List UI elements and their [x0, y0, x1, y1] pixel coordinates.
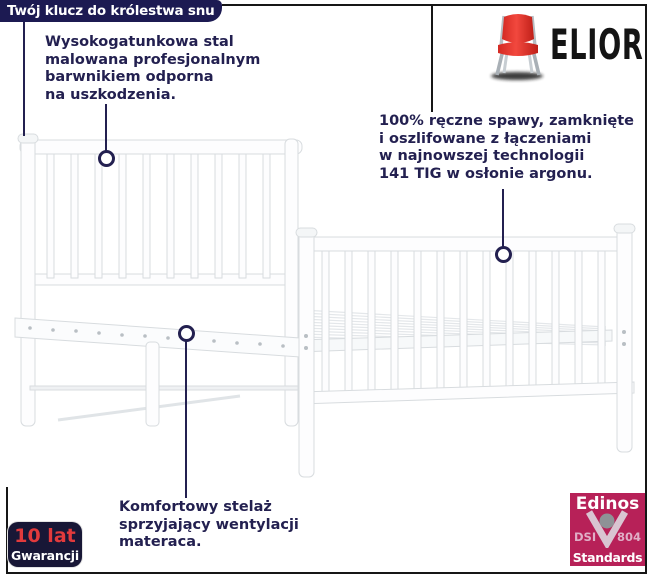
brand-logo: ELIOR — [478, 8, 648, 84]
bed-legs — [30, 342, 298, 426]
annotation-steel: Wysokogatunkowa stal malowana profesjona… — [45, 34, 260, 104]
welds-feed-line — [431, 4, 433, 112]
annotation-welds-line4: 141 TIG w osłonie argonu. — [379, 166, 634, 184]
annotation-base: Komfortowy stelaż sprzyjający wentylacji… — [119, 499, 299, 552]
annotation-base-line3: materaca. — [119, 534, 299, 552]
annotation-welds-line3: w najnowszej technologii — [379, 148, 634, 166]
bed-footboard — [296, 224, 635, 477]
steel-callout-marker — [98, 150, 115, 167]
warranty-years: 10 lat — [8, 524, 82, 548]
annotation-welds: 100% ręczne spawy, zamknięte i oszlifowa… — [379, 113, 634, 183]
brand-wordmark: ELIOR — [550, 22, 644, 68]
certificate-badge: Edinos DSI 804 Standards — [570, 493, 645, 566]
welds-callout-line — [502, 189, 504, 247]
certificate-right-text: 804 — [617, 530, 641, 544]
frame-bottom-line — [6, 572, 647, 574]
warranty-badge: 10 lat Gwarancji — [8, 522, 82, 567]
base-callout-marker — [178, 325, 195, 342]
tagline-banner: Twój klucz do królestwa snu — [0, 0, 222, 22]
annotation-steel-line1: Wysokogatunkowa stal — [45, 34, 260, 52]
annotation-welds-line2: i oszlifowane z łączeniami — [379, 131, 634, 149]
annotation-steel-line3: barwnikiem odporna — [45, 69, 260, 87]
warranty-label: Gwarancji — [8, 548, 82, 563]
certificate-left-text: DSI — [574, 530, 596, 544]
frame-right-line — [645, 4, 647, 574]
welds-callout-marker — [495, 246, 512, 263]
red-chair-icon — [488, 10, 548, 84]
frame-top-line — [222, 4, 645, 6]
steel-callout-line — [105, 104, 107, 153]
annotation-base-line2: sprzyjający wentylacji — [119, 517, 299, 535]
annotation-steel-line2: malowana profesjonalnym — [45, 52, 260, 70]
product-infographic: Twój klucz do królestwa snu ELIOR Wysoko… — [0, 0, 650, 580]
annotation-steel-line4: na uszkodzenia. — [45, 87, 260, 105]
base-callout-line — [185, 340, 187, 498]
banner-callout-line — [23, 22, 25, 136]
certificate-bottom-text: Standards — [570, 550, 645, 565]
annotation-base-line1: Komfortowy stelaż — [119, 499, 299, 517]
annotation-welds-line1: 100% ręczne spawy, zamknięte — [379, 113, 634, 131]
bed-headboard — [18, 134, 302, 426]
